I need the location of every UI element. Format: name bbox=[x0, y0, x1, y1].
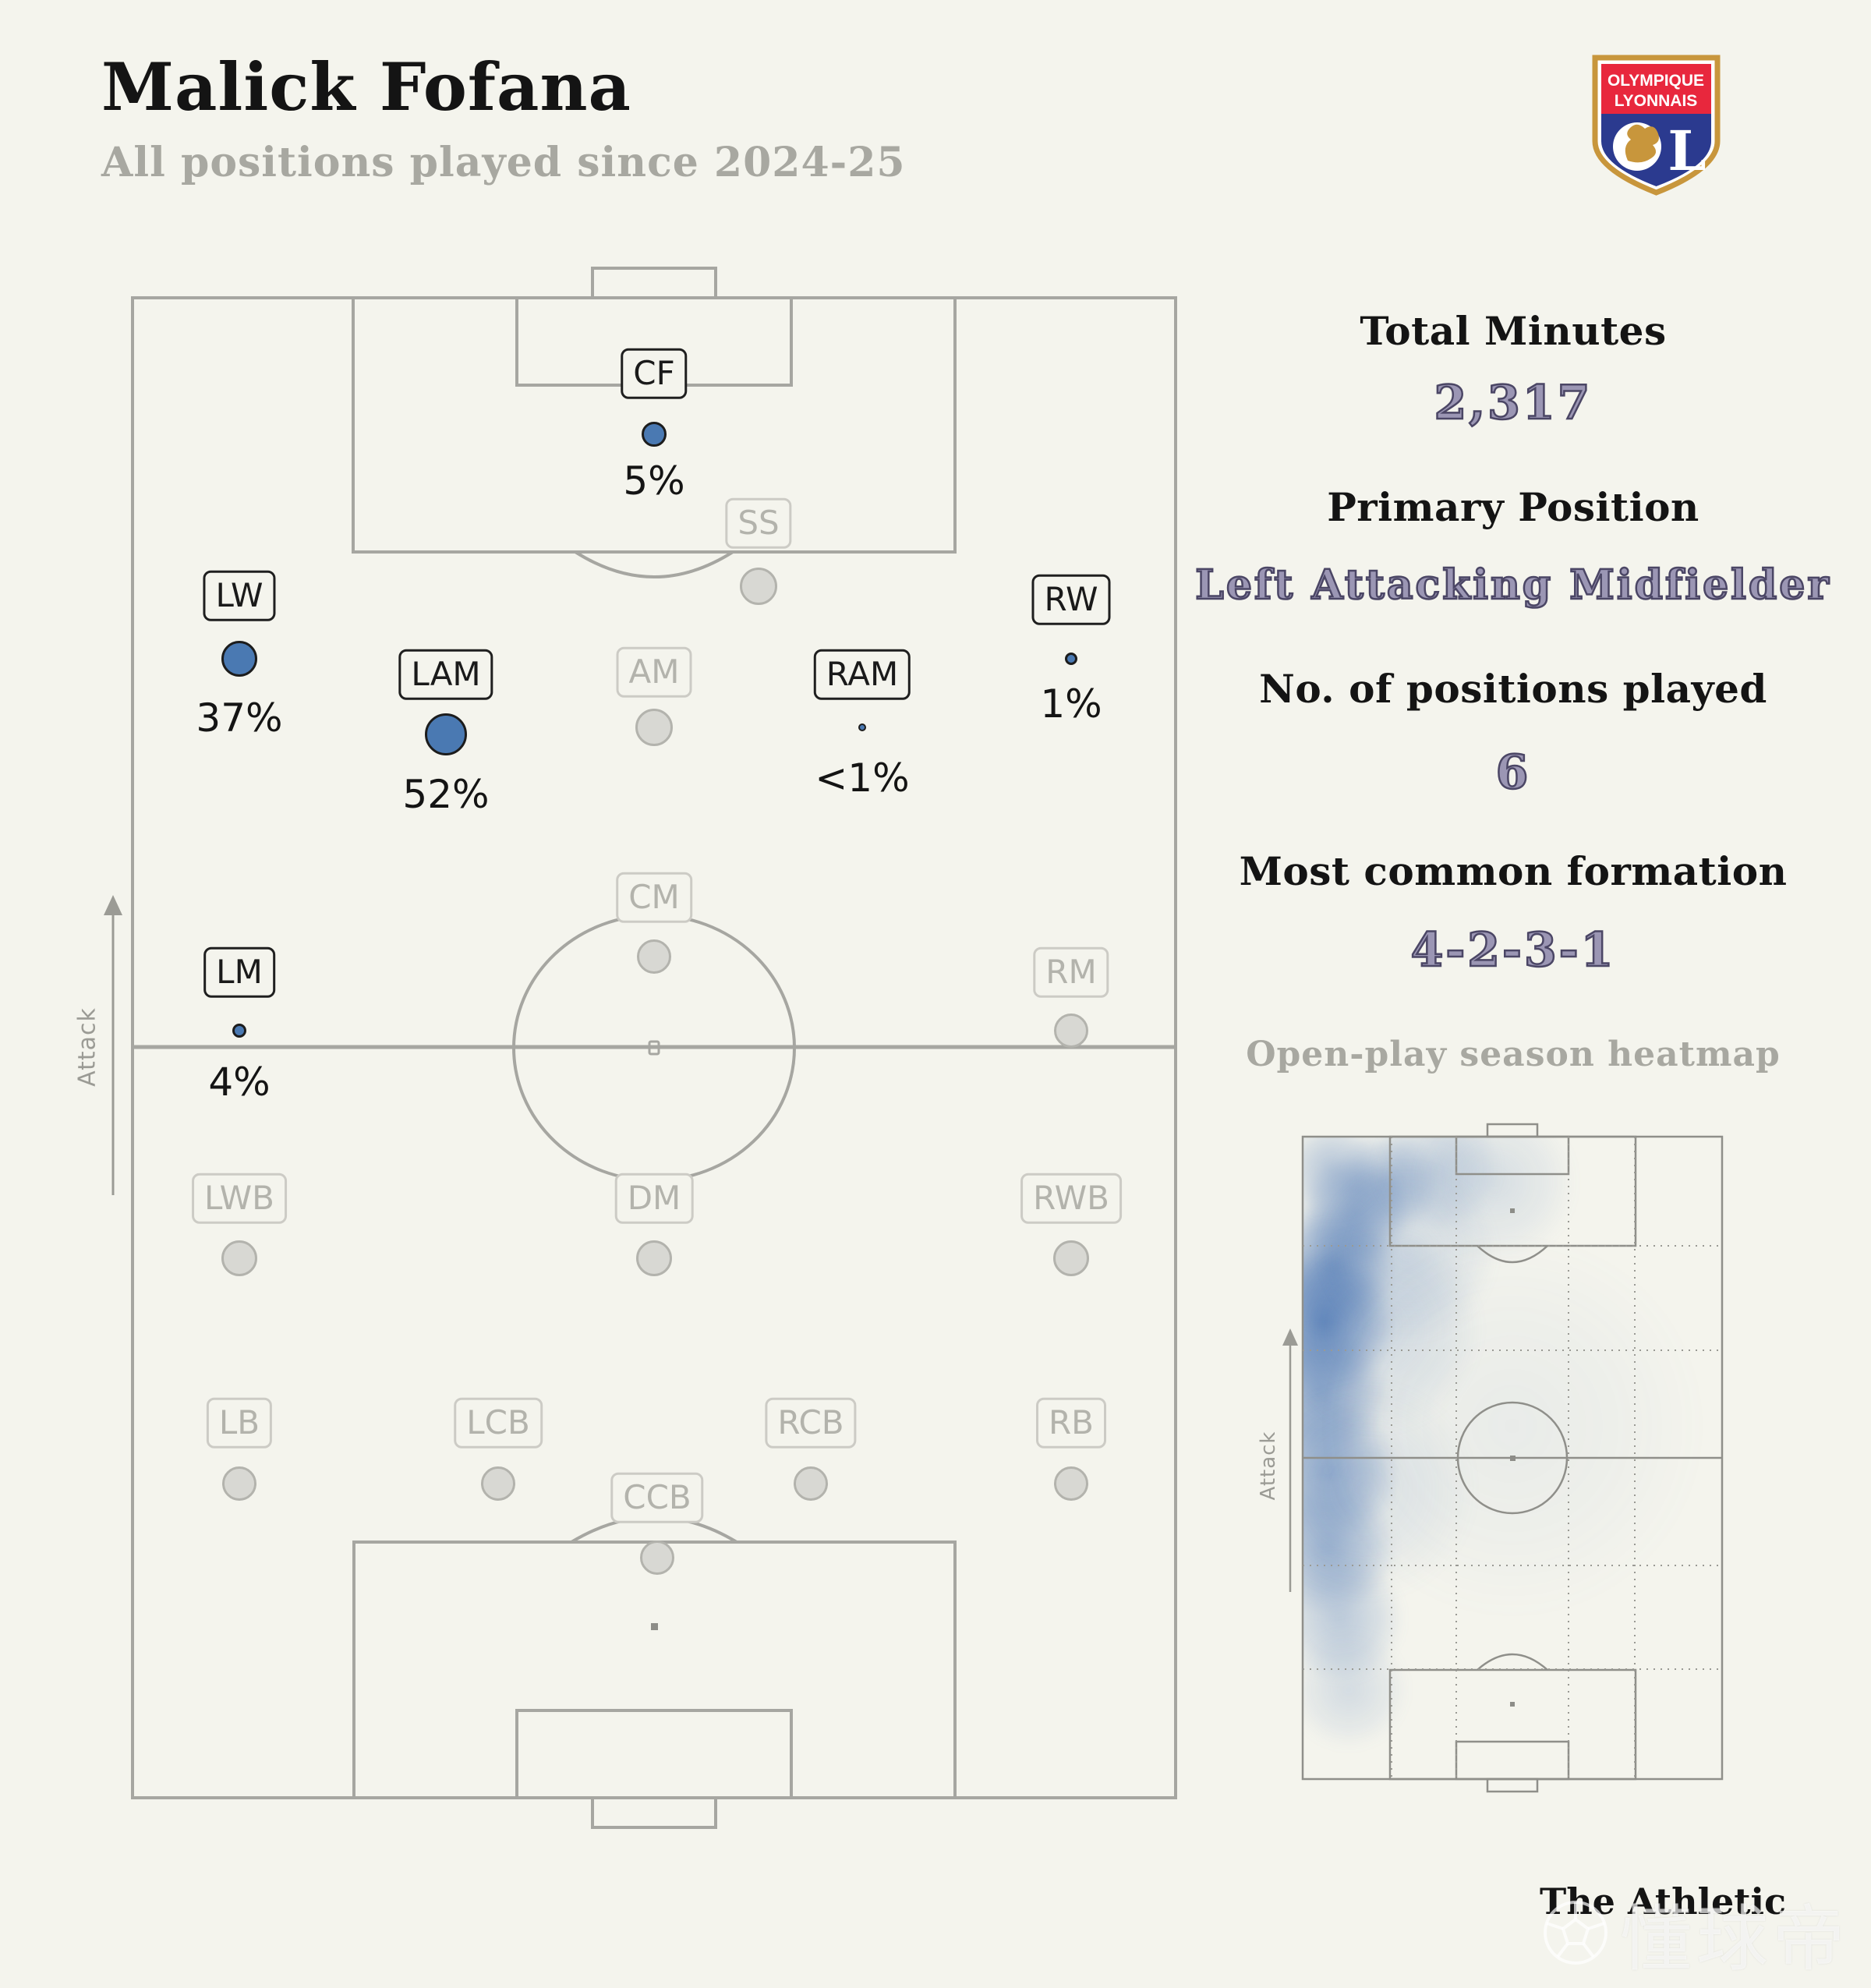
heatmap-layer bbox=[1303, 1137, 1722, 1779]
position-dot-LM bbox=[232, 1024, 246, 1038]
position-dot-DM bbox=[636, 1240, 672, 1276]
position-dot-LWB bbox=[221, 1240, 257, 1276]
position-dot-CCB bbox=[640, 1541, 674, 1575]
position-dot-RWB bbox=[1053, 1240, 1089, 1276]
position-share-LAM: 52% bbox=[402, 772, 489, 817]
football-icon bbox=[1542, 1899, 1609, 1966]
position-label-RWB: RWB bbox=[1020, 1173, 1122, 1224]
position-dot-CF bbox=[642, 422, 667, 447]
position-label-LCB: LCB bbox=[454, 1398, 543, 1449]
badge-club-name-line2: LYONNAIS bbox=[1615, 92, 1698, 110]
position-dot-LB bbox=[222, 1466, 256, 1501]
position-dot-CM bbox=[637, 939, 671, 974]
position-label-CM: CM bbox=[616, 872, 692, 923]
position-dot-RB bbox=[1054, 1466, 1088, 1501]
position-label-LW: LW bbox=[203, 571, 275, 621]
position-label-RB: RB bbox=[1036, 1398, 1106, 1449]
position-share-RAM: <1% bbox=[815, 755, 909, 801]
stat-label-formation: Most common formation bbox=[1162, 848, 1864, 894]
heatmap-title: Open-play season heatmap bbox=[1162, 1035, 1864, 1074]
position-share-CF: 5% bbox=[623, 458, 684, 504]
club-badge: OLYMPIQUE LYONNAIS L bbox=[1589, 51, 1724, 199]
position-label-SS: SS bbox=[725, 498, 791, 549]
position-dot-RW bbox=[1065, 653, 1077, 665]
watermark: 懂球帝 bbox=[1542, 1877, 1871, 1988]
position-label-LM: LM bbox=[203, 947, 275, 998]
main-attack-arrow bbox=[104, 895, 122, 1195]
position-label-DM: DM bbox=[615, 1173, 694, 1224]
badge-club-name-line1: OLYMPIQUE bbox=[1608, 72, 1704, 90]
position-dot-LCB bbox=[481, 1466, 515, 1501]
position-dot-LW bbox=[221, 641, 257, 677]
position-label-CF: CF bbox=[621, 348, 687, 399]
position-label-RW: RW bbox=[1031, 575, 1110, 625]
stat-value-primary-position: Left Attacking Midfielder bbox=[1162, 561, 1864, 609]
position-dot-RM bbox=[1054, 1013, 1088, 1048]
watermark-text: 懂球帝 bbox=[1620, 1881, 1849, 1985]
position-dot-RAM bbox=[858, 723, 866, 731]
stat-label-positions-played: No. of positions played bbox=[1162, 666, 1864, 712]
penalty-spot bbox=[651, 1623, 658, 1630]
position-label-LAM: LAM bbox=[398, 649, 493, 700]
position-share-LM: 4% bbox=[208, 1059, 270, 1105]
position-label-RAM: RAM bbox=[814, 649, 911, 700]
stat-value-positions-played: 6 bbox=[1162, 745, 1864, 800]
position-dot-RCB bbox=[794, 1466, 828, 1501]
badge-monogram: L bbox=[1668, 119, 1706, 183]
position-label-LB: LB bbox=[207, 1398, 272, 1449]
attack-label-heatmap: Attack bbox=[1257, 1431, 1280, 1500]
position-share-LW: 37% bbox=[196, 695, 282, 741]
page-title: Malick Fofana bbox=[101, 48, 631, 126]
position-dot-AM bbox=[635, 709, 673, 746]
position-label-AM: AM bbox=[617, 647, 692, 698]
position-label-LWB: LWB bbox=[192, 1173, 287, 1224]
heatmap-attack-arrow bbox=[1282, 1328, 1298, 1592]
position-label-RCB: RCB bbox=[765, 1398, 856, 1449]
heatmap-blob-15 bbox=[1310, 1223, 1715, 1629]
position-dot-SS bbox=[740, 568, 777, 605]
stat-value-formation: 4-2-3-1 bbox=[1162, 923, 1864, 978]
position-share-RW: 1% bbox=[1040, 681, 1102, 727]
stat-label-primary-position: Primary Position bbox=[1162, 484, 1864, 530]
page-subtitle: All positions played since 2024-25 bbox=[101, 139, 906, 186]
position-label-RM: RM bbox=[1033, 947, 1109, 998]
attack-label-main: Attack bbox=[74, 1007, 101, 1087]
position-label-CCB: CCB bbox=[610, 1473, 703, 1523]
stat-value-total-minutes: 2,317 bbox=[1162, 376, 1864, 430]
stat-label-total-minutes: Total Minutes bbox=[1162, 308, 1864, 354]
position-dot-LAM bbox=[425, 713, 467, 755]
infographic-page: Malick Fofana All positions played since… bbox=[0, 0, 1871, 1988]
